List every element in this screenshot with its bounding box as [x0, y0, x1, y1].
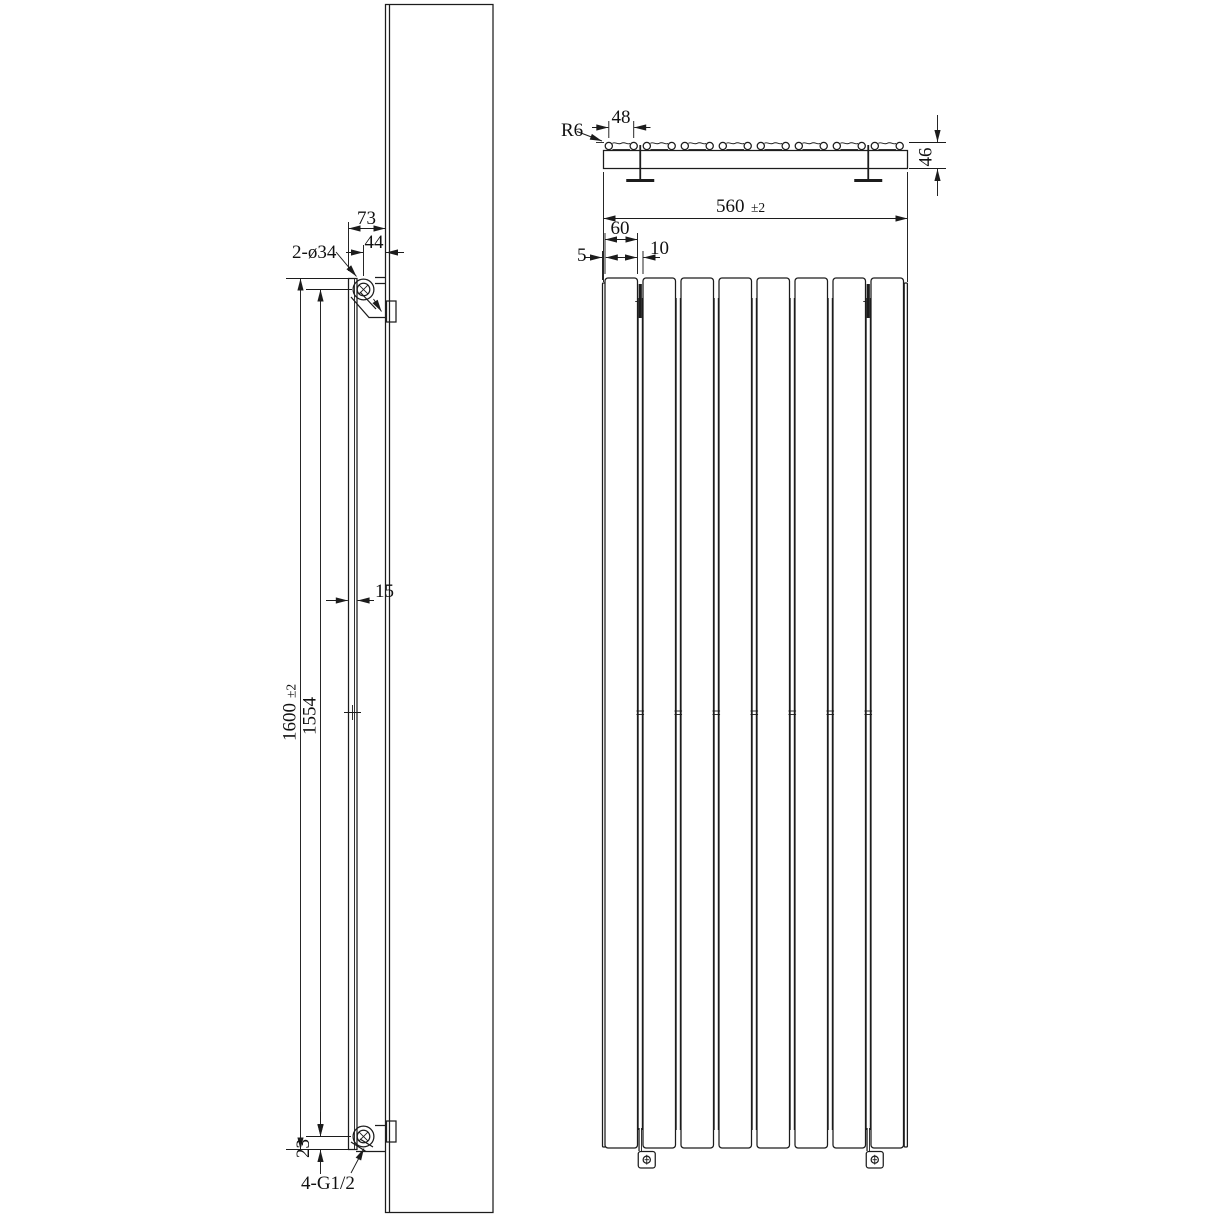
tube-sections: [605, 142, 903, 149]
tube-face: [802, 143, 820, 144]
drawing-canvas: 73 44 2-ø34 15 1600 ±2 1554 23 4-G1/2: [0, 0, 1214, 1214]
tube-end: [719, 142, 726, 149]
dim-panel-gap: 10: [650, 238, 669, 259]
dim-tube-flat: 48: [612, 107, 631, 128]
dim-overall-height: 1600: [280, 703, 301, 741]
panel: [681, 278, 714, 1148]
dim-panel-thickness: 15: [375, 581, 394, 602]
radiator-technical-drawing: 73 44 2-ø34 15 1600 ±2 1554 23 4-G1/2: [0, 0, 1214, 1214]
dim-front-to-wall: 73: [357, 208, 376, 229]
radius-callout: R6: [561, 120, 583, 141]
top-view: 48 R6 46 560 ±2: [561, 107, 946, 282]
panel: [719, 278, 752, 1148]
panel: [833, 278, 866, 1148]
tube-face: [726, 143, 744, 144]
panel: [757, 278, 790, 1148]
front-view-dimensions: 60 5 10: [577, 218, 669, 280]
side-view: 73 44 2-ø34 15 1600 ±2 1554 23 4-G1/2: [280, 5, 494, 1213]
dim-edge-margin: 5: [577, 245, 587, 266]
radiator-side-profile: [344, 278, 361, 1150]
hanger-hook: [867, 284, 870, 318]
thread-callout-leader: [351, 1149, 364, 1174]
hanger-hook: [639, 284, 642, 318]
tube-end: [858, 142, 865, 149]
dim-hole-to-bottom: 23: [293, 1139, 314, 1158]
tube-end: [643, 142, 650, 149]
radiator-panels: [605, 278, 904, 1148]
tube-end: [744, 142, 751, 149]
hole-callout-leader: [336, 252, 357, 277]
tube-end: [833, 142, 840, 149]
panel: [643, 278, 676, 1148]
brick-wall: [386, 5, 494, 1213]
tube-end: [668, 142, 675, 149]
tube-face: [878, 143, 896, 144]
dim-overall-width-tol: ±2: [751, 200, 765, 215]
tube-end: [795, 142, 802, 149]
tube-end: [896, 142, 903, 149]
tube-end: [706, 142, 713, 149]
tube-end: [681, 142, 688, 149]
tube-end: [630, 142, 637, 149]
dim-depth: 46: [916, 148, 937, 167]
panel: [605, 278, 638, 1148]
dim-panel-width: 60: [611, 218, 630, 239]
tube-end: [871, 142, 878, 149]
tube-face: [764, 143, 782, 144]
dim-overall-height-tol: ±2: [284, 684, 299, 698]
tube-end: [782, 142, 789, 149]
panel: [871, 278, 904, 1148]
dim-hole-spacing: 1554: [300, 697, 321, 736]
dim-overall-width: 560: [716, 196, 745, 217]
tube-face: [650, 143, 668, 144]
hole-callout: 2-ø34: [292, 242, 337, 263]
thread-callout: 4-G1/2: [301, 1173, 355, 1194]
back-panel-section: [604, 151, 908, 169]
right-edge-tab: [904, 283, 907, 1147]
panel: [795, 278, 828, 1148]
dim-hole-to-wall: 44: [365, 232, 385, 253]
front-view: 60 5 10: [577, 218, 907, 1168]
tube-end: [605, 142, 612, 149]
tube-end: [757, 142, 764, 149]
top-view-dimensions: 48 R6 46 560 ±2: [561, 107, 946, 282]
tube-face: [840, 143, 858, 144]
tube-end: [820, 142, 827, 149]
tube-face: [612, 143, 630, 144]
tube-face: [688, 143, 706, 144]
